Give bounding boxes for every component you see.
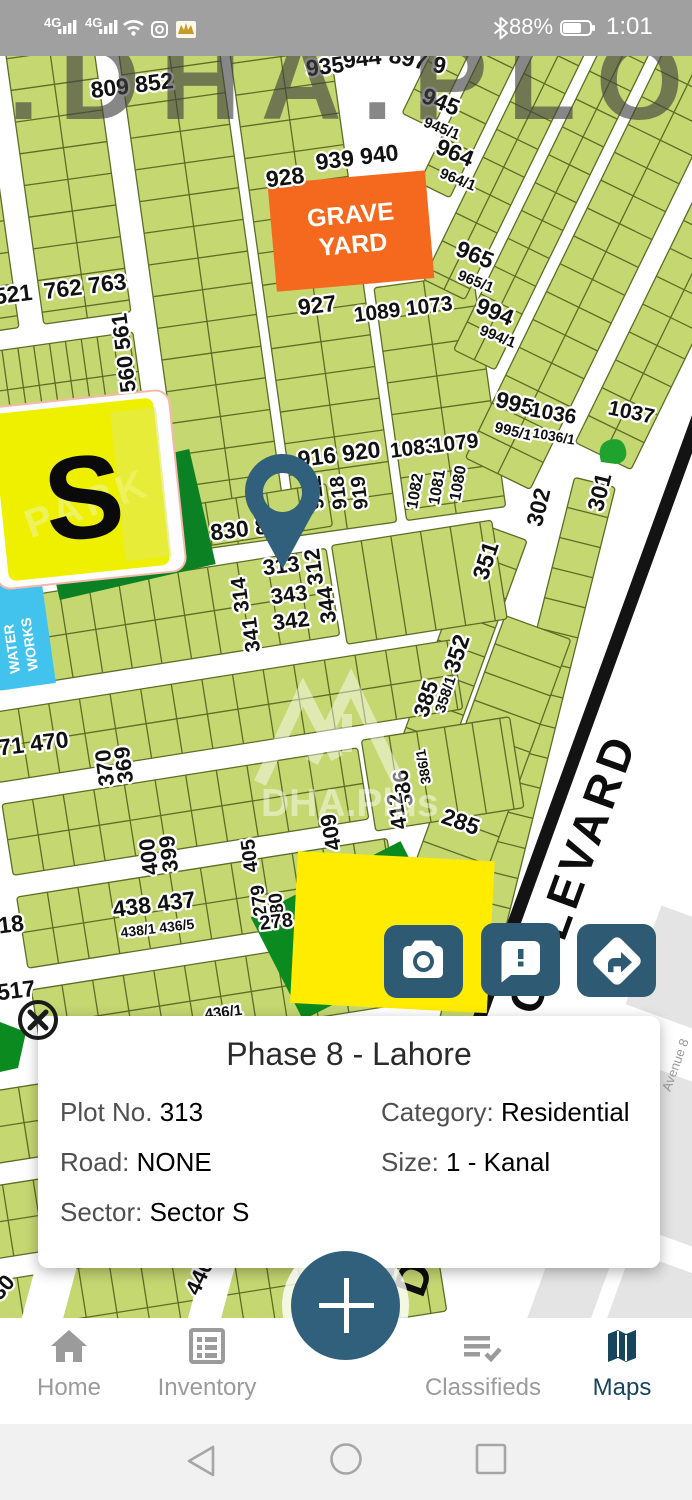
svg-text:342: 342 — [271, 606, 310, 635]
svg-text:919: 919 — [347, 475, 373, 511]
svg-text:341: 341 — [238, 616, 265, 654]
svg-text:314: 314 — [227, 576, 254, 614]
svg-text:344: 344 — [312, 584, 341, 624]
svg-text:DHA.Plus: DHA.Plus — [261, 782, 439, 825]
svg-text:1:01: 1:01 — [606, 13, 653, 40]
svg-text:405: 405 — [237, 838, 263, 874]
svg-text:278: 278 — [258, 909, 294, 935]
svg-text:399: 399 — [154, 834, 183, 873]
svg-text:928: 928 — [264, 162, 305, 193]
svg-text:S: S — [38, 428, 130, 568]
svg-text:927: 927 — [296, 290, 337, 320]
svg-text:88%: 88% — [509, 14, 553, 39]
svg-text:YARD: YARD — [318, 228, 389, 262]
svg-text:369: 369 — [109, 745, 138, 784]
svg-text:4G: 4G — [44, 15, 61, 30]
svg-text:521: 521 — [0, 279, 34, 310]
svg-text:18: 18 — [0, 910, 26, 939]
svg-text:4G: 4G — [85, 15, 102, 30]
svg-text:312: 312 — [299, 547, 328, 586]
